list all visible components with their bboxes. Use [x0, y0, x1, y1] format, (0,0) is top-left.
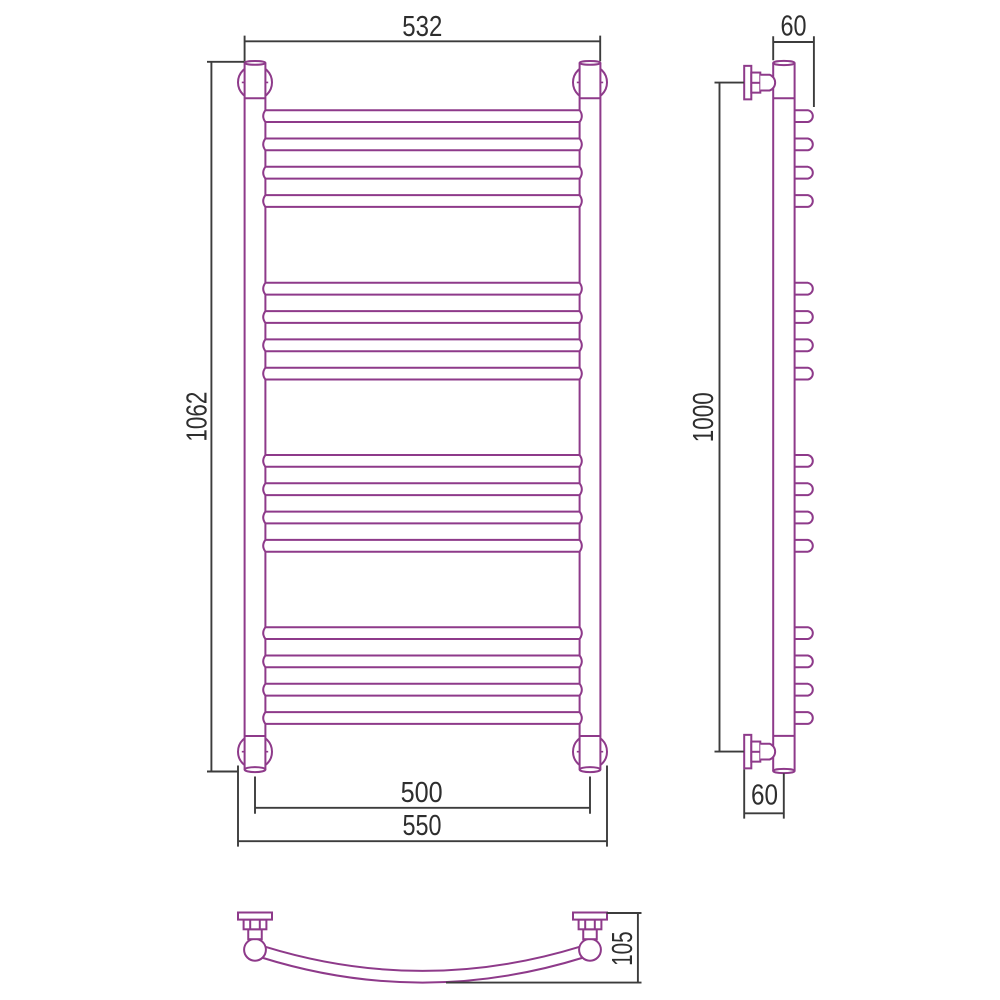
svg-text:500: 500 — [401, 777, 443, 809]
svg-text:550: 550 — [403, 810, 442, 842]
svg-text:532: 532 — [402, 11, 442, 43]
svg-text:105: 105 — [607, 931, 639, 966]
svg-text:1062: 1062 — [182, 392, 214, 442]
svg-text:1000: 1000 — [688, 392, 720, 442]
svg-text:60: 60 — [781, 11, 807, 43]
svg-text:60: 60 — [751, 780, 778, 812]
